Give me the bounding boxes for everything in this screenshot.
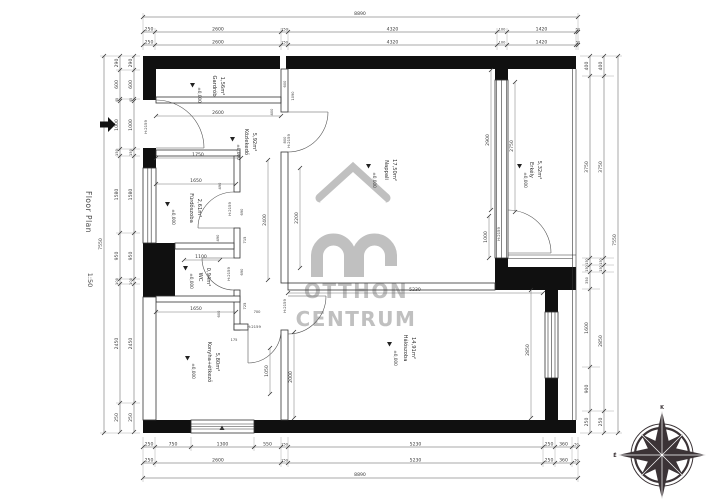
- dim-label: 2600: [212, 27, 224, 33]
- livingroom-door-swing: [288, 112, 328, 152]
- level-label: ±0,000: [171, 209, 176, 225]
- dim-label: 690: [240, 268, 244, 276]
- dim-label: 150: [129, 148, 133, 156]
- dim-label: 50: [576, 28, 580, 32]
- dim-label: 100: [499, 41, 507, 45]
- kitchen-door-swing: [248, 330, 281, 363]
- dim-label: 50: [576, 41, 580, 45]
- dim-label: 2450: [114, 338, 120, 350]
- dim-label: 250: [545, 458, 554, 464]
- door-height-label: H:2159: [247, 324, 261, 329]
- room-label-nappali: Nappali: [383, 160, 389, 180]
- dim-label: 1580: [128, 189, 134, 201]
- compass-letter-top: K: [660, 405, 665, 411]
- floor-plan-canvas: OTTHON CENTRUM 8890 8890 250 2600 150 43…: [0, 0, 707, 500]
- level-marker: [183, 266, 188, 271]
- area-label-gardrob: 1,56m²: [219, 77, 225, 96]
- entry-door-swing: [156, 100, 204, 148]
- dim-label: 400: [270, 108, 274, 116]
- dim-label: 1600: [584, 322, 590, 334]
- room-label-haloszoba: Hálószoba: [402, 335, 409, 362]
- door-height-label: H:2159: [496, 227, 501, 241]
- bedroom-window: [545, 312, 558, 378]
- dim-label: 1420: [536, 27, 548, 33]
- area-label-erkely: 5,32m²: [536, 161, 542, 180]
- dim-label: 150: [281, 28, 289, 32]
- dim-label: 2200: [294, 212, 300, 224]
- room-label-kozlekedo: Közlekedő: [243, 129, 249, 155]
- sheet-titles: Floor Plan 1:50: [84, 191, 94, 287]
- dim-label: 150: [281, 41, 289, 45]
- compass-letter-left: É: [613, 451, 617, 459]
- dim-label: 2400: [262, 214, 268, 226]
- dim-label: 2750: [509, 140, 515, 152]
- dim-label: 3750: [598, 161, 604, 173]
- floor-plan-title: Floor Plan: [84, 191, 93, 233]
- watermark-line2: CENTRUM: [296, 307, 417, 331]
- room-labels: Gardrób 1,56m² ±0,000 Közlekedő 5,92m² ±…: [165, 75, 542, 382]
- area-label-nappali: 17,50m²: [391, 159, 397, 181]
- dim-label: 900: [584, 385, 590, 394]
- dim-label: 250: [145, 27, 154, 33]
- balcony-railing: [508, 69, 576, 420]
- dim-label: 8890: [354, 11, 366, 17]
- dim-label: 950: [114, 252, 120, 261]
- dim-label: 1090: [291, 91, 295, 101]
- level-label: ±0,000: [197, 87, 202, 103]
- dim-label: 250: [114, 413, 120, 422]
- dim-label: 5230: [409, 287, 421, 293]
- dim-label: 2600: [212, 458, 224, 464]
- level-marker: [366, 164, 371, 169]
- dim-label: 1750: [192, 152, 204, 158]
- dim-label: 1420: [536, 40, 548, 46]
- level-label: ±0,000: [236, 144, 241, 160]
- dim-label: 490: [218, 182, 222, 190]
- dim-label: 250: [545, 442, 554, 448]
- dim-label: 50: [574, 443, 578, 447]
- dim-label: 1650: [190, 306, 202, 312]
- room-label-gardrob: Gardrób: [211, 75, 218, 97]
- level-marker: [185, 356, 190, 361]
- area-label-wc: 0,94m²: [205, 268, 211, 287]
- room-label-wc: WC: [197, 273, 203, 282]
- dim-label: 100: [499, 28, 507, 32]
- dim-label: 50: [574, 459, 578, 463]
- watermark: OTTHON CENTRUM: [296, 168, 417, 331]
- dim-label: 750: [169, 442, 178, 448]
- dim-label: 250: [584, 418, 590, 427]
- dim-label: 100: [115, 277, 119, 285]
- dim-label: 725: [243, 303, 247, 310]
- dim-label: 360: [559, 442, 568, 448]
- door-height-label: H:2159: [143, 120, 148, 134]
- level-marker: [230, 137, 235, 142]
- room-label-konyha: Konyha+étkező: [206, 342, 213, 383]
- dim-label: 490: [216, 234, 220, 242]
- dim-label: 250: [145, 40, 154, 46]
- level-label: ±0,000: [393, 350, 398, 366]
- level-marker: [190, 83, 195, 88]
- dim-label: 7550: [98, 238, 104, 250]
- balcony-door-swing: [508, 210, 551, 253]
- dim-label: 150: [585, 258, 589, 264]
- room-label-furdoszoba: Fürdőszoba: [188, 193, 194, 223]
- dim-label: 150: [115, 148, 119, 156]
- interior-dimension-labels: 2600 1750 1650 1650 5230 1100 700 175 60…: [190, 80, 531, 383]
- dim-label: 600: [283, 80, 287, 88]
- watermark-logo: [317, 168, 391, 277]
- dim-label: 950: [128, 252, 134, 261]
- level-label: ±0,000: [189, 273, 194, 289]
- area-label-kozlekedo: 5,92m²: [251, 133, 257, 152]
- scale-label: 1:50: [86, 273, 94, 288]
- dim-label: 150: [599, 265, 603, 271]
- dim-label: 175: [231, 338, 238, 342]
- level-marker: [387, 342, 392, 347]
- dim-label: 290: [114, 59, 120, 68]
- dim-label: 250: [598, 418, 604, 427]
- dim-label: 2850: [598, 335, 604, 347]
- dim-label: 1100: [195, 254, 207, 260]
- area-label-konyha: 5,80m²: [214, 353, 220, 372]
- door-height-label: H:2159: [227, 202, 232, 216]
- dim-label: 600: [128, 80, 134, 89]
- dim-label: 290: [128, 59, 134, 68]
- level-marker: [165, 202, 170, 207]
- dim-label: 2850: [525, 344, 531, 356]
- dim-label: 250: [145, 442, 154, 448]
- level-marker: [517, 164, 522, 169]
- dim-label: 600: [114, 80, 120, 89]
- door-height-label: H:2159: [226, 267, 231, 281]
- dim-label: 1000: [128, 119, 134, 131]
- dim-label: 250: [145, 458, 154, 464]
- dim-label: 400: [598, 62, 604, 71]
- dim-label: 8890: [354, 472, 366, 478]
- dim-label: 1300: [217, 442, 229, 448]
- dim-label: 150: [585, 265, 589, 271]
- dim-label: 2900: [485, 134, 491, 146]
- dim-label: 2600: [212, 40, 224, 46]
- floor-plan-drawing: OTTHON CENTRUM 8890 8890 250 2600 150 43…: [0, 0, 707, 500]
- dim-label: 150: [281, 459, 289, 463]
- dim-label: 250: [128, 413, 134, 422]
- dim-label: 400: [584, 62, 590, 71]
- dim-label: 690: [240, 208, 244, 216]
- dim-label: 2000: [288, 371, 294, 383]
- level-label: ±0,000: [523, 172, 528, 188]
- dim-label: 1580: [114, 189, 120, 201]
- dim-label: 1050: [264, 365, 270, 377]
- dim-label: 45: [115, 98, 119, 102]
- dim-label: 1000: [483, 231, 489, 243]
- dim-label: 4320: [387, 40, 399, 46]
- dim-label: 45: [129, 98, 133, 102]
- area-label-haloszoba: 14,91m²: [410, 337, 416, 359]
- dim-label: 550: [263, 442, 272, 448]
- dim-label: 150: [599, 258, 603, 264]
- dim-label: 1650: [190, 178, 202, 184]
- dim-label: 100: [129, 277, 133, 285]
- dim-label: 7550: [612, 234, 618, 246]
- level-label: ±0,000: [372, 172, 377, 188]
- dim-label: 5230: [410, 442, 422, 448]
- area-label-furdoszoba: 2,61m²: [196, 199, 202, 218]
- dim-label: 715: [243, 237, 247, 244]
- kitchen-window: [191, 420, 254, 433]
- entrance-arrow-icon: [100, 117, 116, 132]
- bathroom-window: [143, 168, 156, 243]
- door-height-label: H:2159: [282, 299, 287, 313]
- dim-label: 350: [585, 276, 589, 284]
- dim-label: 150: [281, 443, 289, 447]
- dim-label: 5230: [410, 458, 422, 464]
- level-label: ±0,000: [191, 363, 196, 379]
- compass-rose: K D Ny É: [613, 405, 707, 500]
- room-label-erkely: Erkély: [528, 162, 535, 178]
- dim-label: 700: [254, 310, 262, 314]
- dim-label: 4320: [387, 27, 399, 33]
- dim-label: 2450: [128, 338, 134, 350]
- dim-label: 360: [559, 458, 568, 464]
- dim-label: 3750: [584, 161, 590, 173]
- dim-label: 2600: [212, 110, 224, 116]
- dim-label: 600: [217, 310, 221, 318]
- door-height-label: H:2159: [286, 134, 291, 148]
